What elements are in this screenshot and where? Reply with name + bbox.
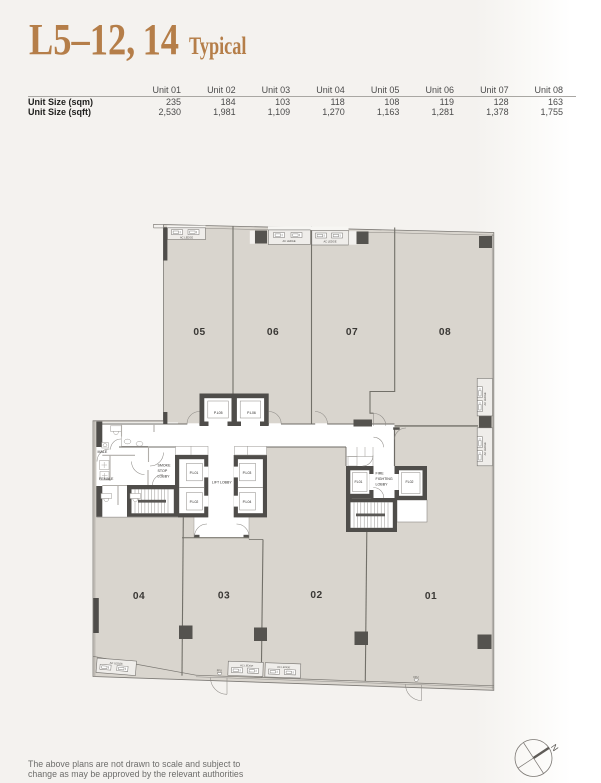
- svg-text:08: 08: [439, 327, 451, 338]
- svg-text:MALE: MALE: [98, 450, 108, 454]
- svg-text:FIGHTING: FIGHTING: [376, 477, 393, 481]
- svg-text:AC LEDGE: AC LEDGE: [240, 663, 254, 667]
- svg-text:P.L05: P.L05: [214, 411, 223, 415]
- svg-text:FL02: FL02: [406, 480, 414, 484]
- svg-text:03: 03: [218, 590, 230, 601]
- svg-text:FL01: FL01: [355, 480, 363, 484]
- svg-text:AC LEDGE: AC LEDGE: [323, 240, 336, 244]
- svg-text:AC LEDGE: AC LEDGE: [483, 442, 487, 455]
- svg-text:P.L02: P.L02: [190, 500, 199, 504]
- svg-text:01: 01: [425, 591, 437, 602]
- svg-text:AC LEDGE: AC LEDGE: [483, 392, 487, 405]
- svg-text:FIRE: FIRE: [376, 472, 385, 476]
- svg-text:02: 02: [310, 590, 322, 601]
- svg-text:AC LEDGE: AC LEDGE: [277, 665, 291, 669]
- svg-text:P.L03: P.L03: [243, 471, 252, 475]
- svg-text:05: 05: [193, 327, 205, 338]
- svg-text:07: 07: [346, 327, 358, 338]
- svg-text:P.L06: P.L06: [247, 411, 256, 415]
- svg-text:FEMALE: FEMALE: [99, 477, 114, 481]
- svg-text:04: 04: [133, 591, 145, 602]
- svg-text:LIFT LOBBY: LIFT LOBBY: [212, 481, 232, 485]
- svg-text:FFU: FFU: [217, 669, 222, 673]
- svg-text:LOBBY: LOBBY: [376, 483, 389, 487]
- svg-text:SMOKE: SMOKE: [158, 464, 172, 468]
- svg-text:06: 06: [267, 327, 279, 338]
- svg-text:P.L01: P.L01: [190, 471, 199, 475]
- svg-text:STOP: STOP: [158, 469, 168, 473]
- svg-text:AC LEDGE: AC LEDGE: [282, 239, 295, 243]
- svg-text:FFU: FFU: [414, 675, 419, 679]
- svg-text:AC LEDGE: AC LEDGE: [180, 235, 193, 239]
- svg-text:P.L04: P.L04: [243, 500, 252, 504]
- svg-text:LOBBY: LOBBY: [158, 475, 171, 479]
